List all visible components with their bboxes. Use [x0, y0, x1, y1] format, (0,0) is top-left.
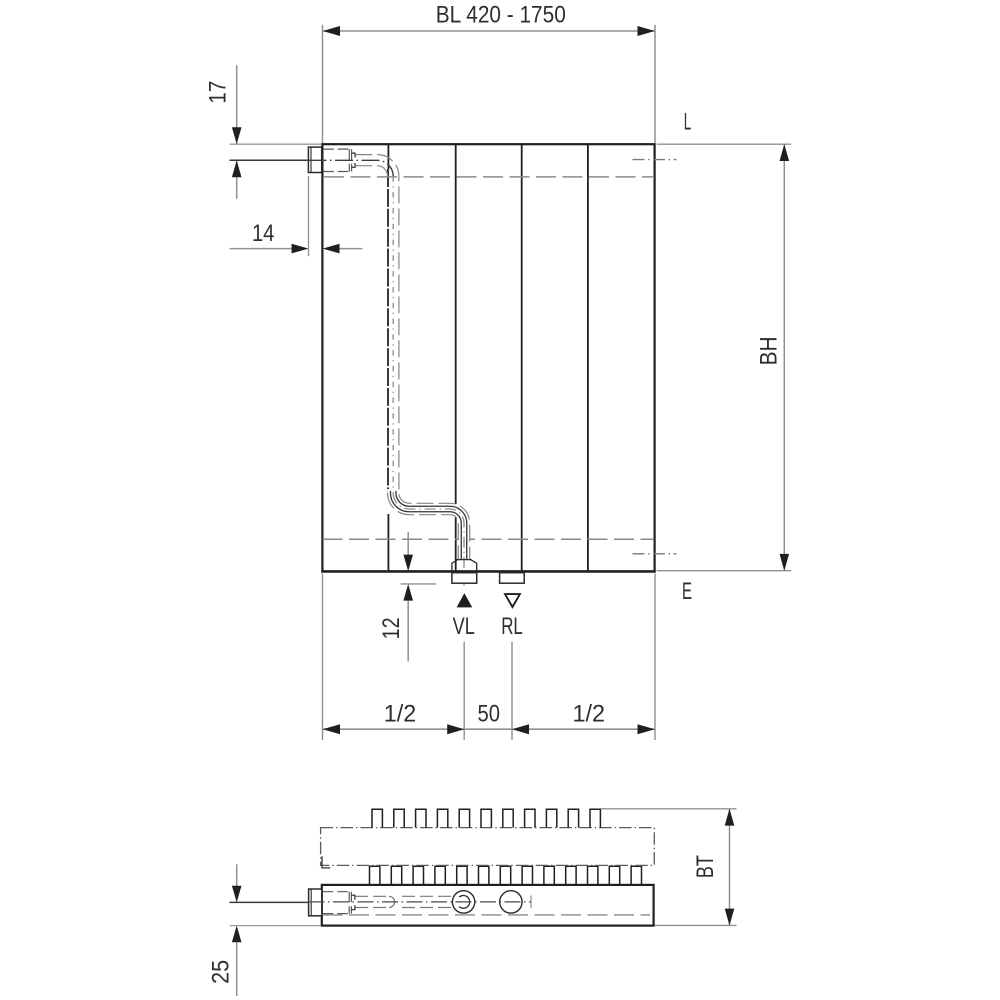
- svg-text:BL 420 - 1750: BL 420 - 1750: [436, 1, 566, 28]
- svg-text:50: 50: [478, 701, 501, 728]
- svg-text:E: E: [682, 578, 692, 605]
- svg-text:17: 17: [204, 81, 231, 104]
- svg-text:14: 14: [252, 220, 275, 247]
- svg-text:VL: VL: [453, 613, 475, 640]
- svg-text:RL: RL: [501, 613, 523, 640]
- svg-text:12: 12: [378, 617, 405, 639]
- svg-text:1/2: 1/2: [573, 701, 606, 728]
- svg-text:25: 25: [207, 960, 234, 984]
- svg-text:BH: BH: [756, 336, 783, 365]
- svg-text:BT: BT: [692, 855, 719, 878]
- svg-text:1/2: 1/2: [384, 701, 417, 728]
- svg-text:L: L: [684, 108, 692, 135]
